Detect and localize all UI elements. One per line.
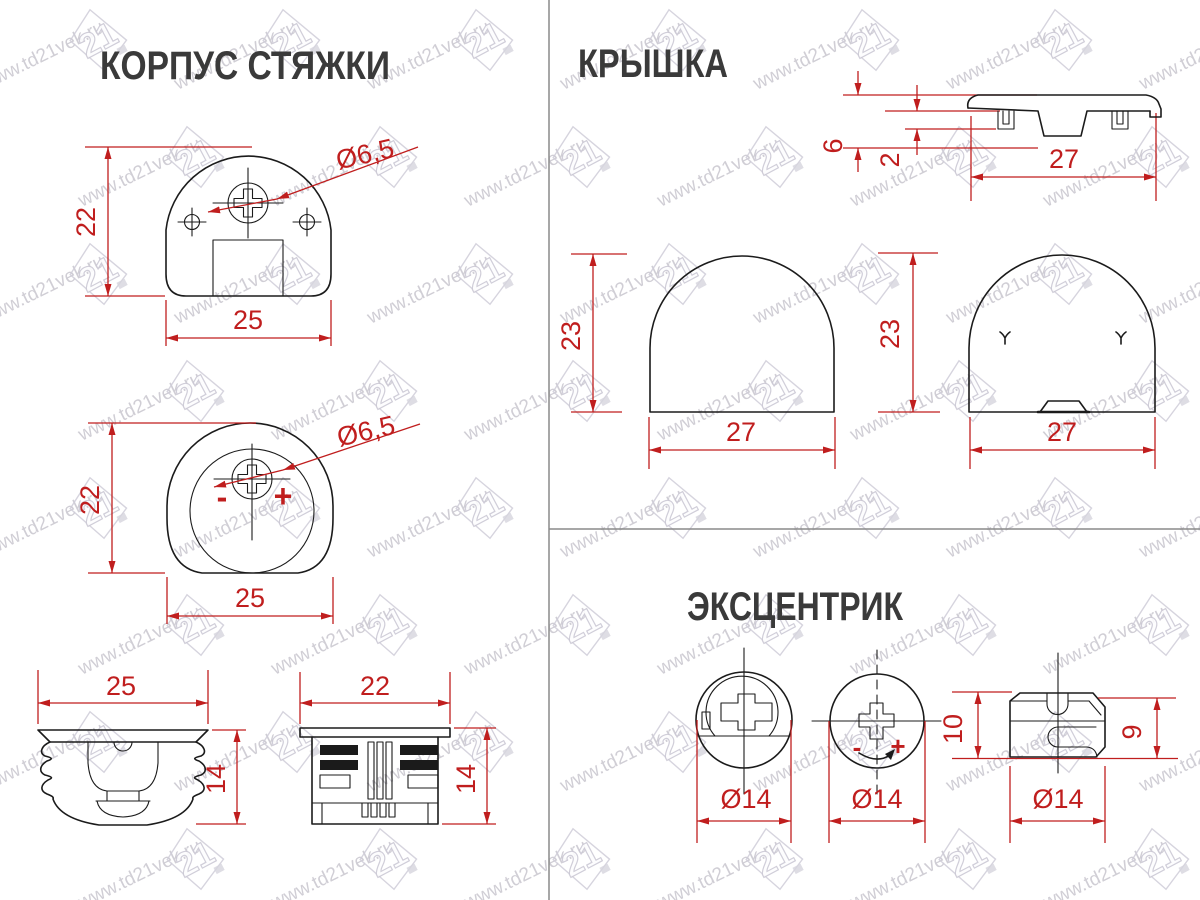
svg-text:21: 21: [652, 249, 703, 300]
clip-mark-right: [1116, 332, 1126, 344]
drawing-page: www.td21vek.ru21www.td21vek.ru21www.td21…: [0, 0, 1200, 900]
svg-text:21: 21: [1135, 366, 1186, 417]
svg-text:21: 21: [459, 717, 510, 768]
svg-text:21: 21: [363, 366, 414, 417]
svg-text:21: 21: [1038, 15, 1089, 66]
excentrik-plus-mark: +: [890, 731, 905, 761]
svg-text:21: 21: [170, 600, 221, 651]
svg-text:21: 21: [1135, 132, 1186, 183]
watermark-url-text: www.td21vek.ru: [1135, 251, 1200, 329]
korpus-plus-mark: +: [274, 478, 293, 514]
svg-text:21: 21: [942, 366, 993, 417]
svg-text:21: 21: [749, 366, 800, 417]
svg-text:21: 21: [363, 834, 414, 885]
excentrik-minus-mark: -: [853, 732, 862, 762]
svg-text:21: 21: [459, 15, 510, 66]
dim-kryshka-dome-left-width: 27: [726, 417, 756, 447]
svg-text:21: 21: [73, 249, 124, 300]
dim-korpus-side-height: 22: [75, 485, 105, 515]
svg-text:21: 21: [749, 834, 800, 885]
svg-text:21: 21: [266, 249, 317, 300]
dim-excentrik-face-dia: Ø14: [720, 784, 771, 814]
svg-text:21: 21: [266, 717, 317, 768]
dim-kryshka-profile-height: 6: [818, 138, 848, 153]
section-title-excentrik: ЭКСЦЕНТРИК: [687, 585, 903, 629]
dim-korpus-bottom-b-width: 22: [360, 671, 390, 701]
dim-kryshka-dome-right-height: 23: [875, 319, 905, 349]
svg-text:21: 21: [942, 132, 993, 183]
excentrik-face-view: Ø14: [696, 648, 792, 843]
svg-text:21: 21: [170, 834, 221, 885]
watermark-url-text: www.td21vek.ru: [1135, 485, 1200, 563]
svg-text:21: 21: [1135, 600, 1186, 651]
excentrik-side-view: 10 9 Ø14: [938, 653, 1178, 843]
svg-text:21: 21: [556, 132, 607, 183]
dim-korpus-side-hole: Ø6,5: [334, 410, 398, 452]
dim-kryshka-profile-thickness: 2: [875, 152, 905, 167]
svg-text:21: 21: [845, 483, 896, 534]
svg-text:21: 21: [845, 15, 896, 66]
svg-text:21: 21: [459, 483, 510, 534]
svg-text:21: 21: [363, 600, 414, 651]
dim-korpus-front-height: 22: [71, 207, 101, 237]
svg-text:21: 21: [652, 483, 703, 534]
dim-excentrik-side-height: 10: [938, 714, 968, 744]
svg-text:21: 21: [170, 366, 221, 417]
svg-text:21: 21: [1135, 834, 1186, 885]
svg-text:21: 21: [556, 834, 607, 885]
dim-korpus-front-width: 25: [233, 305, 263, 335]
dim-excentrik-side-inner-height: 9: [1117, 724, 1147, 739]
dim-excentrik-side-dia: Ø14: [1032, 784, 1083, 814]
svg-text:21: 21: [1038, 717, 1089, 768]
watermark-layer: www.td21vek.ru21www.td21vek.ru21www.td21…: [0, 1, 1200, 900]
svg-text:21: 21: [652, 717, 703, 768]
dim-kryshka-dome-left-height: 23: [556, 321, 586, 351]
dim-excentrik-back-dia: Ø14: [851, 784, 902, 814]
dim-korpus-side-width: 25: [235, 583, 265, 613]
svg-text:21: 21: [1038, 483, 1089, 534]
svg-text:21: 21: [459, 249, 510, 300]
svg-text:21: 21: [556, 600, 607, 651]
dim-kryshka-profile-width: 27: [1049, 144, 1079, 174]
technical-drawing: www.td21vek.ru21www.td21vek.ru21www.td21…: [0, 0, 1200, 900]
dim-kryshka-dome-right-width: 27: [1047, 417, 1077, 447]
dim-korpus-bottom-a-height: 14: [201, 764, 231, 794]
svg-text:21: 21: [845, 249, 896, 300]
svg-text:21: 21: [556, 366, 607, 417]
dim-korpus-bottom-b-height: 14: [451, 764, 481, 794]
section-title-korpus: КОРПУС СТЯЖКИ: [100, 44, 390, 88]
dim-korpus-bottom-a-width: 25: [106, 671, 136, 701]
svg-text:21: 21: [942, 600, 993, 651]
svg-text:21: 21: [749, 132, 800, 183]
clip-mark-left: [1000, 332, 1010, 344]
section-title-kryshka: КРЫШКА: [578, 42, 728, 86]
watermark-url-text: www.td21vek.ru: [1135, 17, 1200, 95]
svg-text:21: 21: [942, 834, 993, 885]
